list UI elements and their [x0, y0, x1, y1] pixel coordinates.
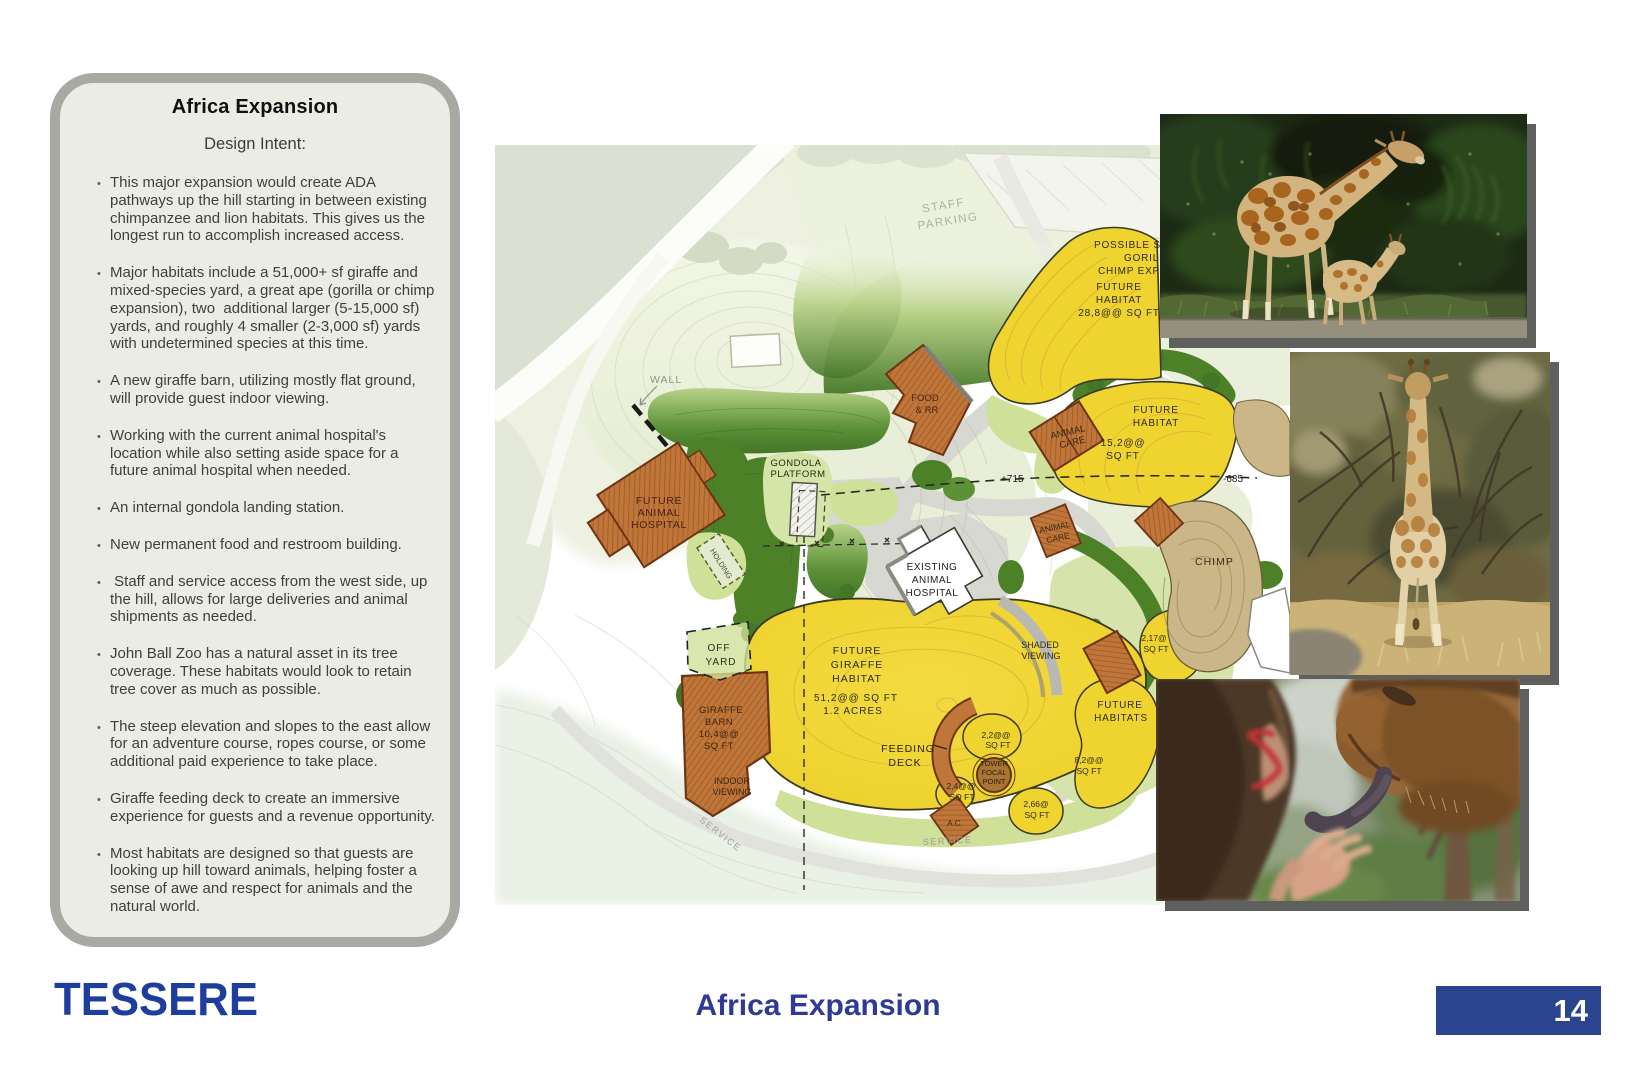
svg-text:CHIMP EXP: CHIMP EXP: [1098, 266, 1160, 277]
svg-text:SQ FT: SQ FT: [949, 792, 974, 802]
svg-text:TESSERE: TESSERE: [54, 980, 258, 1020]
svg-text:A.C.: A.C.: [947, 819, 963, 828]
svg-text:HOSPITAL: HOSPITAL: [631, 519, 687, 531]
svg-text:GIRAFFE: GIRAFFE: [831, 659, 884, 671]
svg-text:FUTURE: FUTURE: [833, 645, 882, 657]
svg-text:HOSPITAL: HOSPITAL: [906, 588, 959, 599]
svg-text:SQ FT: SQ FT: [1106, 451, 1139, 462]
svg-text:CHIMP: CHIMP: [1195, 556, 1234, 568]
svg-text:51,2@@ SQ FT: 51,2@@ SQ FT: [814, 693, 898, 704]
svg-text:2,66@: 2,66@: [1023, 799, 1048, 809]
svg-text:TOWER: TOWER: [980, 759, 1008, 768]
svg-text:SQ FT: SQ FT: [704, 741, 734, 752]
svg-text:INDOOR: INDOOR: [714, 776, 751, 786]
svg-text:HABITAT: HABITAT: [1096, 295, 1142, 306]
svg-text:YARD: YARD: [705, 657, 736, 668]
svg-text:ANIMAL: ANIMAL: [912, 575, 952, 586]
svg-text:28,8@@ SQ FT: 28,8@@ SQ FT: [1078, 308, 1160, 319]
svg-text:2,17@: 2,17@: [1141, 633, 1166, 643]
svg-text:FUTURE: FUTURE: [636, 495, 682, 507]
svg-text:-685: -685: [1223, 474, 1243, 485]
svg-text:HABITAT: HABITAT: [1133, 418, 1179, 429]
svg-text:WALL: WALL: [650, 374, 682, 386]
svg-text:VIEWING: VIEWING: [1021, 651, 1060, 661]
svg-text:FOOD: FOOD: [911, 393, 939, 404]
svg-text:SHADED: SHADED: [1021, 640, 1059, 650]
svg-text:SQ FT: SQ FT: [985, 740, 1010, 750]
svg-text:SQ FT: SQ FT: [1024, 810, 1049, 820]
svg-text:& RR: & RR: [916, 405, 939, 416]
svg-text:OFF: OFF: [708, 643, 731, 654]
svg-text:HABITATS: HABITATS: [1094, 713, 1148, 724]
svg-text:8,2@@: 8,2@@: [1074, 755, 1103, 765]
svg-text:1.2 ACRES: 1.2 ACRES: [823, 706, 883, 717]
svg-text:SQ FT: SQ FT: [1076, 766, 1101, 776]
svg-text:GONDOLA: GONDOLA: [770, 458, 821, 469]
svg-text:VIEWING: VIEWING: [712, 787, 751, 797]
svg-text:EXISTING: EXISTING: [907, 562, 958, 573]
svg-text:2,4@@: 2,4@@: [946, 781, 975, 791]
svg-text:GIRAFFE: GIRAFFE: [699, 705, 743, 716]
svg-text:ANIMAL: ANIMAL: [638, 507, 681, 519]
svg-text:15,2@@: 15,2@@: [1101, 438, 1146, 449]
svg-text:FUTURE: FUTURE: [1133, 405, 1178, 416]
svg-text:SQ FT: SQ FT: [1143, 644, 1168, 654]
svg-text:+715: +715: [1001, 474, 1024, 485]
svg-text:DECK: DECK: [888, 757, 921, 769]
svg-text:FUTURE: FUTURE: [1097, 700, 1142, 711]
svg-text:FOCAL: FOCAL: [981, 768, 1006, 777]
svg-text:PLATFORM: PLATFORM: [770, 469, 825, 480]
svg-text:10,4@@: 10,4@@: [699, 729, 739, 740]
svg-text:FEEDING: FEEDING: [881, 743, 935, 755]
svg-text:POINT: POINT: [983, 777, 1006, 786]
svg-text:POSSIBLE SP: POSSIBLE SP: [1094, 240, 1168, 251]
svg-text:FUTURE: FUTURE: [1096, 282, 1141, 293]
svg-text:2,2@@: 2,2@@: [981, 730, 1010, 740]
svg-text:HABITAT: HABITAT: [832, 673, 882, 685]
svg-text:BARN: BARN: [705, 717, 733, 728]
